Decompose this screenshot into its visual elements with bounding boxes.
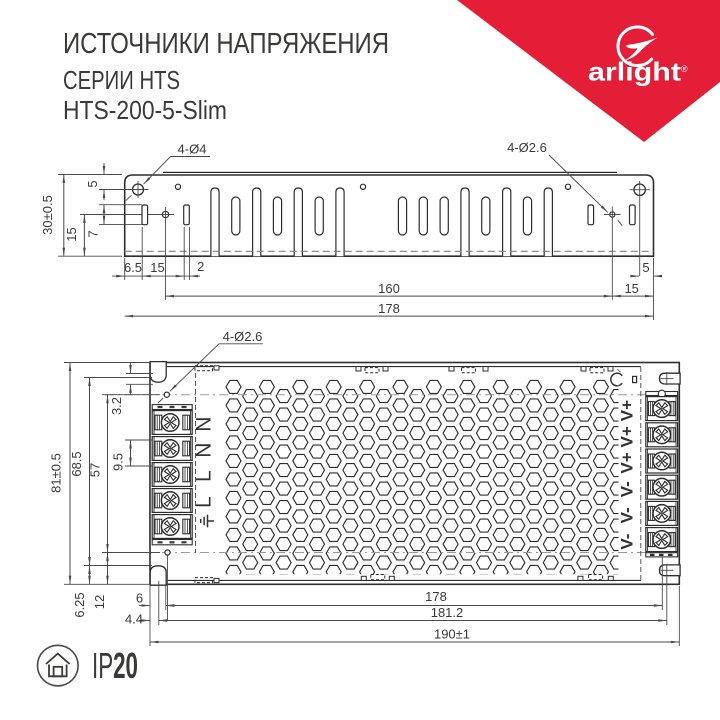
- svg-text:IP20: IP20: [92, 645, 138, 686]
- svg-text:81±0.5: 81±0.5: [49, 453, 64, 493]
- svg-text:2: 2: [197, 259, 204, 274]
- svg-text:V+: V+: [618, 400, 637, 421]
- svg-text:6: 6: [136, 591, 143, 606]
- svg-text:V-: V-: [618, 507, 637, 523]
- svg-text:178: 178: [378, 301, 400, 316]
- svg-text:СЕРИИ HTS: СЕРИИ HTS: [63, 65, 180, 95]
- svg-text:68.5: 68.5: [69, 451, 84, 476]
- svg-text:N: N: [193, 417, 216, 432]
- svg-text:HTS-200-5-Slim: HTS-200-5-Slim: [63, 95, 227, 125]
- svg-text:178: 178: [425, 589, 447, 604]
- svg-text:57: 57: [88, 463, 103, 477]
- svg-text:15: 15: [150, 260, 164, 275]
- svg-text:15: 15: [64, 227, 79, 241]
- svg-text:L: L: [193, 496, 216, 508]
- svg-text:7: 7: [86, 230, 101, 237]
- svg-text:9.5: 9.5: [111, 453, 126, 471]
- svg-text:6.5: 6.5: [124, 260, 142, 275]
- svg-text:arlight: arlight: [588, 57, 681, 87]
- svg-text:L: L: [193, 470, 216, 482]
- svg-text:12: 12: [92, 595, 107, 609]
- svg-text:181.2: 181.2: [431, 605, 464, 620]
- svg-text:4-Ø2.6: 4-Ø2.6: [507, 140, 547, 155]
- svg-text:5: 5: [642, 260, 649, 275]
- svg-text:V-: V-: [618, 534, 637, 550]
- svg-text:V-: V-: [618, 481, 637, 497]
- svg-text:6.25: 6.25: [72, 592, 87, 617]
- svg-text:5: 5: [85, 180, 100, 187]
- svg-text:4-Ø4: 4-Ø4: [178, 142, 207, 157]
- svg-text:V+: V+: [618, 426, 637, 447]
- svg-text:ИСТОЧНИКИ НАПРЯЖЕНИЯ: ИСТОЧНИКИ НАПРЯЖЕНИЯ: [63, 28, 389, 60]
- svg-text:N: N: [193, 443, 216, 458]
- svg-text:V+: V+: [618, 452, 637, 473]
- svg-text:160: 160: [378, 281, 400, 296]
- svg-text:15: 15: [624, 281, 638, 296]
- svg-text:®: ®: [681, 64, 688, 74]
- svg-text:4-Ø2.6: 4-Ø2.6: [223, 329, 263, 344]
- svg-text:3.2: 3.2: [109, 397, 124, 415]
- svg-text:4.4: 4.4: [125, 612, 143, 627]
- svg-text:30±0.5: 30±0.5: [40, 195, 55, 235]
- svg-text:190±1: 190±1: [434, 627, 470, 642]
